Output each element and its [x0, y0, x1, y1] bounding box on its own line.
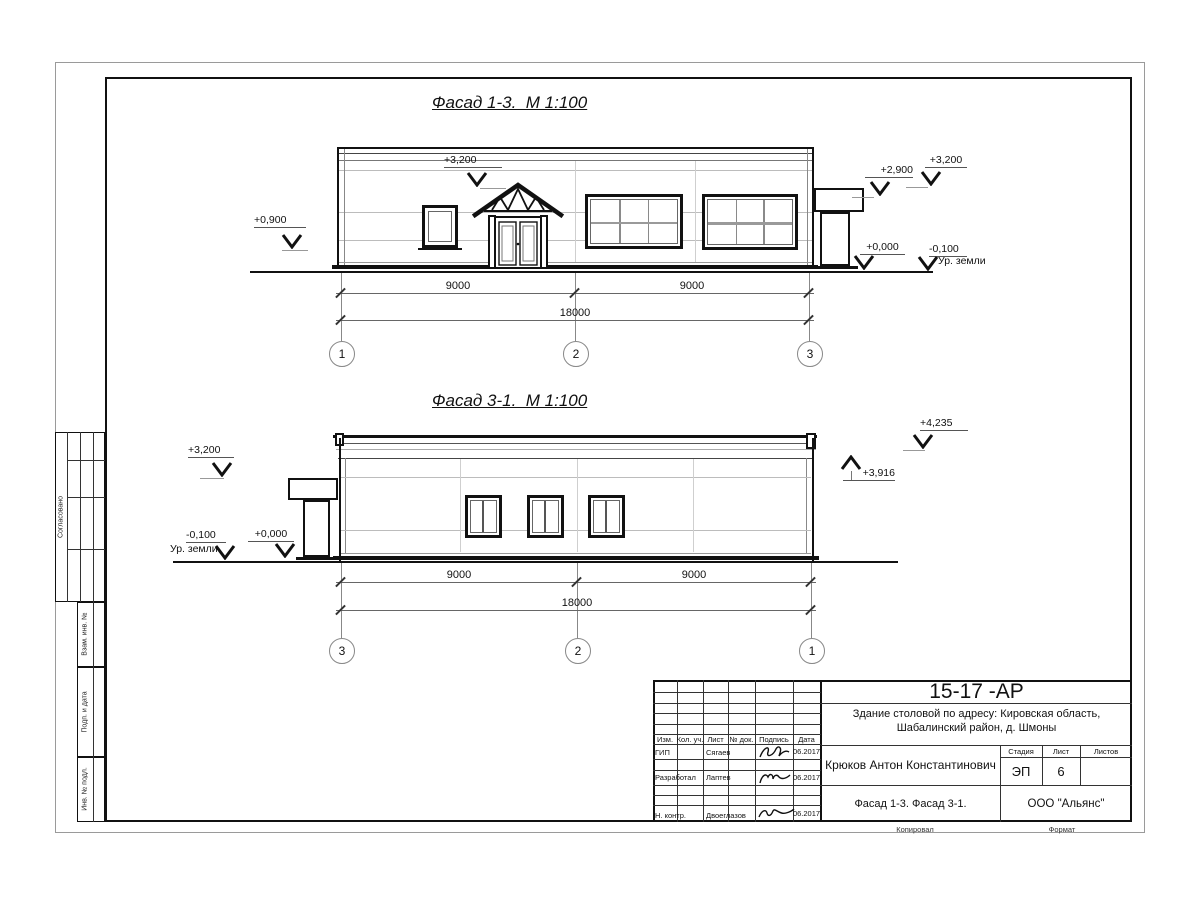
signature	[757, 744, 792, 760]
line	[93, 602, 94, 667]
stage-value: ЭП	[1000, 757, 1042, 785]
line	[67, 549, 105, 550]
elevation-mark-label: +0,900	[254, 214, 306, 228]
ground-level-label: Ур. земли	[938, 255, 986, 267]
axis-bubble: 2	[563, 341, 589, 367]
col-header-izm: Изм.	[653, 734, 677, 744]
col-header-date: Дата	[793, 734, 820, 744]
line	[653, 759, 821, 760]
facade1-title: Фасад 1-3. М 1:100	[432, 93, 587, 113]
window-sill	[418, 248, 462, 250]
elevation-mark-label: +2,900	[865, 164, 913, 178]
elevation-mark-label: +4,235	[920, 417, 968, 431]
elevation-arrow-down-icon	[911, 433, 935, 449]
frame-label-replace-inv: Взам. инв. №	[82, 612, 89, 655]
line	[755, 680, 756, 822]
dimension-value: 9000	[409, 569, 509, 581]
facade1-ground-line	[250, 271, 933, 273]
listov-label: Листов	[1080, 745, 1132, 757]
dimension-line	[336, 610, 816, 611]
dimension-value: 9000	[644, 569, 744, 581]
dimension-value: 9000	[642, 280, 742, 292]
elevation-arrow-down-icon	[465, 171, 489, 187]
facade2-canopy-pad	[296, 557, 336, 560]
elevation-mark-label: +0,000	[248, 528, 294, 542]
frame-label-inv-orig: Инв. № подл.	[82, 767, 89, 811]
facade2-canopy-post	[303, 500, 330, 557]
row-role: Разработал	[655, 773, 696, 782]
drawing-sheet: Фасад 1-3. М 1:100	[0, 0, 1200, 900]
axis-bubble: 3	[329, 638, 355, 664]
axis-bubble: 2	[565, 638, 591, 664]
dimension-line	[336, 320, 814, 321]
elevation-arrow-down-icon	[868, 180, 892, 196]
line	[336, 443, 816, 444]
elevation-arrow-down-icon	[852, 254, 876, 270]
door-handle	[517, 243, 520, 246]
object-line1: Здание столовой по адресу: Кировская обл…	[821, 707, 1132, 721]
elevation-arrow-down-icon	[916, 255, 940, 271]
copied-label: Копировал	[865, 824, 965, 834]
facade2-title: Фасад 3-1. М 1:100	[432, 391, 587, 411]
mullion	[605, 501, 607, 532]
line	[906, 187, 928, 188]
doc-number: 15-17 -АР	[821, 680, 1132, 703]
line	[653, 785, 821, 786]
ground-level-label: Ур. земли	[170, 543, 218, 555]
facade1-canopy-post	[820, 212, 850, 266]
line	[653, 692, 821, 693]
facade2-canopy	[288, 478, 338, 500]
parapet-cap	[806, 433, 816, 449]
line	[653, 724, 821, 725]
line	[577, 459, 578, 552]
frame-label-approved: Согласовано	[58, 496, 65, 538]
line	[336, 449, 816, 450]
elevation-mark-label: +3,200	[444, 154, 502, 168]
line	[653, 795, 821, 796]
signature	[757, 803, 795, 821]
mullion	[544, 501, 546, 532]
line	[338, 458, 813, 459]
sheet-name: Фасад 1-3. Фасад 3-1.	[821, 785, 1000, 822]
line	[93, 667, 94, 757]
line	[480, 188, 506, 189]
facade1-window-1	[585, 194, 683, 249]
line	[344, 149, 345, 267]
line	[282, 250, 308, 251]
facade1-window-small	[422, 205, 458, 248]
mullion	[482, 501, 484, 532]
line	[341, 530, 811, 531]
extension-line	[341, 563, 342, 638]
elevation-arrow-down-icon	[919, 170, 943, 186]
line	[339, 153, 812, 154]
row-name: Лаптев	[706, 773, 731, 782]
dimension-value: 18000	[527, 597, 627, 609]
porch-step	[477, 268, 559, 272]
col-header-list: Лист	[703, 734, 728, 744]
axis-bubble: 1	[799, 638, 825, 664]
facade1-window-2	[702, 194, 798, 250]
elevation-arrow-down-icon	[213, 544, 237, 560]
frame-label-sign-date: Подп. и дата	[82, 691, 89, 732]
list-label: Лист	[1042, 745, 1080, 757]
mullion	[591, 222, 677, 225]
window-glass	[590, 199, 678, 244]
window-glass	[532, 500, 559, 533]
chief-name: Крюков Антон Константинович	[821, 745, 1000, 785]
line	[807, 149, 808, 267]
elevation-arrow-down-icon	[273, 542, 297, 558]
dimension-value: 18000	[525, 307, 625, 319]
line	[93, 757, 94, 822]
facade2-wall-edge	[812, 438, 814, 561]
line	[67, 460, 105, 461]
facade1-plinth	[332, 265, 818, 269]
col-header-sign: Подпись	[755, 734, 793, 744]
line	[341, 553, 811, 554]
window-glass	[470, 500, 497, 533]
facade2-roof-edge	[333, 435, 817, 438]
col-header-kol: Кол. уч.	[677, 734, 703, 744]
facade2-window-1	[465, 495, 502, 538]
facade2-window-3	[588, 495, 625, 538]
line	[903, 450, 925, 451]
facade1-canopy	[814, 188, 864, 212]
dimension-value: 9000	[408, 280, 508, 292]
line	[677, 680, 678, 822]
extension-line	[809, 273, 810, 341]
axis-bubble: 1	[329, 341, 355, 367]
line	[821, 703, 1132, 704]
line	[703, 680, 704, 822]
window-glass	[428, 211, 452, 242]
elevation-mark-label: +0,000	[860, 241, 905, 255]
line	[852, 197, 874, 198]
line	[460, 459, 461, 552]
line	[67, 432, 68, 602]
line	[200, 478, 224, 479]
line	[653, 713, 821, 714]
extension-line	[811, 563, 812, 638]
line	[695, 161, 696, 262]
line	[339, 262, 812, 263]
axis-bubble: 3	[797, 341, 823, 367]
company-name: ООО "Альянс"	[1000, 785, 1132, 822]
facade2-ground-line	[173, 561, 898, 563]
line	[93, 432, 94, 602]
line	[575, 161, 576, 262]
row-name: Двоеглазов	[706, 811, 746, 820]
elevation-mark-label: +3,200	[188, 444, 234, 458]
facade2-wall-edge	[339, 438, 341, 561]
list-value: 6	[1042, 757, 1080, 785]
facade1-entrance-porch	[470, 178, 570, 274]
line	[653, 703, 821, 704]
format-label: Формат	[1022, 824, 1102, 834]
col-header-doc: № док.	[728, 734, 755, 744]
object-name: Здание столовой по адресу: Кировская обл…	[821, 707, 1132, 745]
signature	[757, 770, 792, 786]
mullion	[708, 222, 792, 225]
elevation-arrow-down-icon	[210, 461, 234, 477]
elevation-mark-label: +3,916	[843, 467, 895, 481]
extension-line	[341, 273, 342, 341]
listov-value	[1080, 757, 1132, 785]
object-line2: Шабалинский район, д. Шмоны	[821, 721, 1132, 735]
line	[806, 458, 807, 553]
row-date: 06.2017	[793, 805, 820, 822]
row-role: Н. контр.	[655, 811, 686, 820]
line	[67, 497, 105, 498]
elevation-arrow-down-icon	[280, 233, 304, 249]
line	[693, 459, 694, 552]
line	[341, 477, 811, 478]
window-glass	[707, 199, 793, 245]
stage-label: Стадия	[1000, 745, 1042, 757]
row-date: 06.2017	[793, 770, 820, 785]
row-role: ГИП	[655, 748, 670, 757]
window-glass	[593, 500, 620, 533]
line	[80, 432, 81, 602]
facade2-plinth	[333, 556, 819, 560]
line	[345, 458, 346, 553]
row-name: Сягаев	[706, 748, 730, 757]
facade2-window-2	[527, 495, 564, 538]
elevation-mark-label: -0,100	[186, 529, 226, 543]
row-date: 06.2017	[793, 744, 820, 759]
elevation-mark-label: +3,200	[925, 154, 967, 168]
